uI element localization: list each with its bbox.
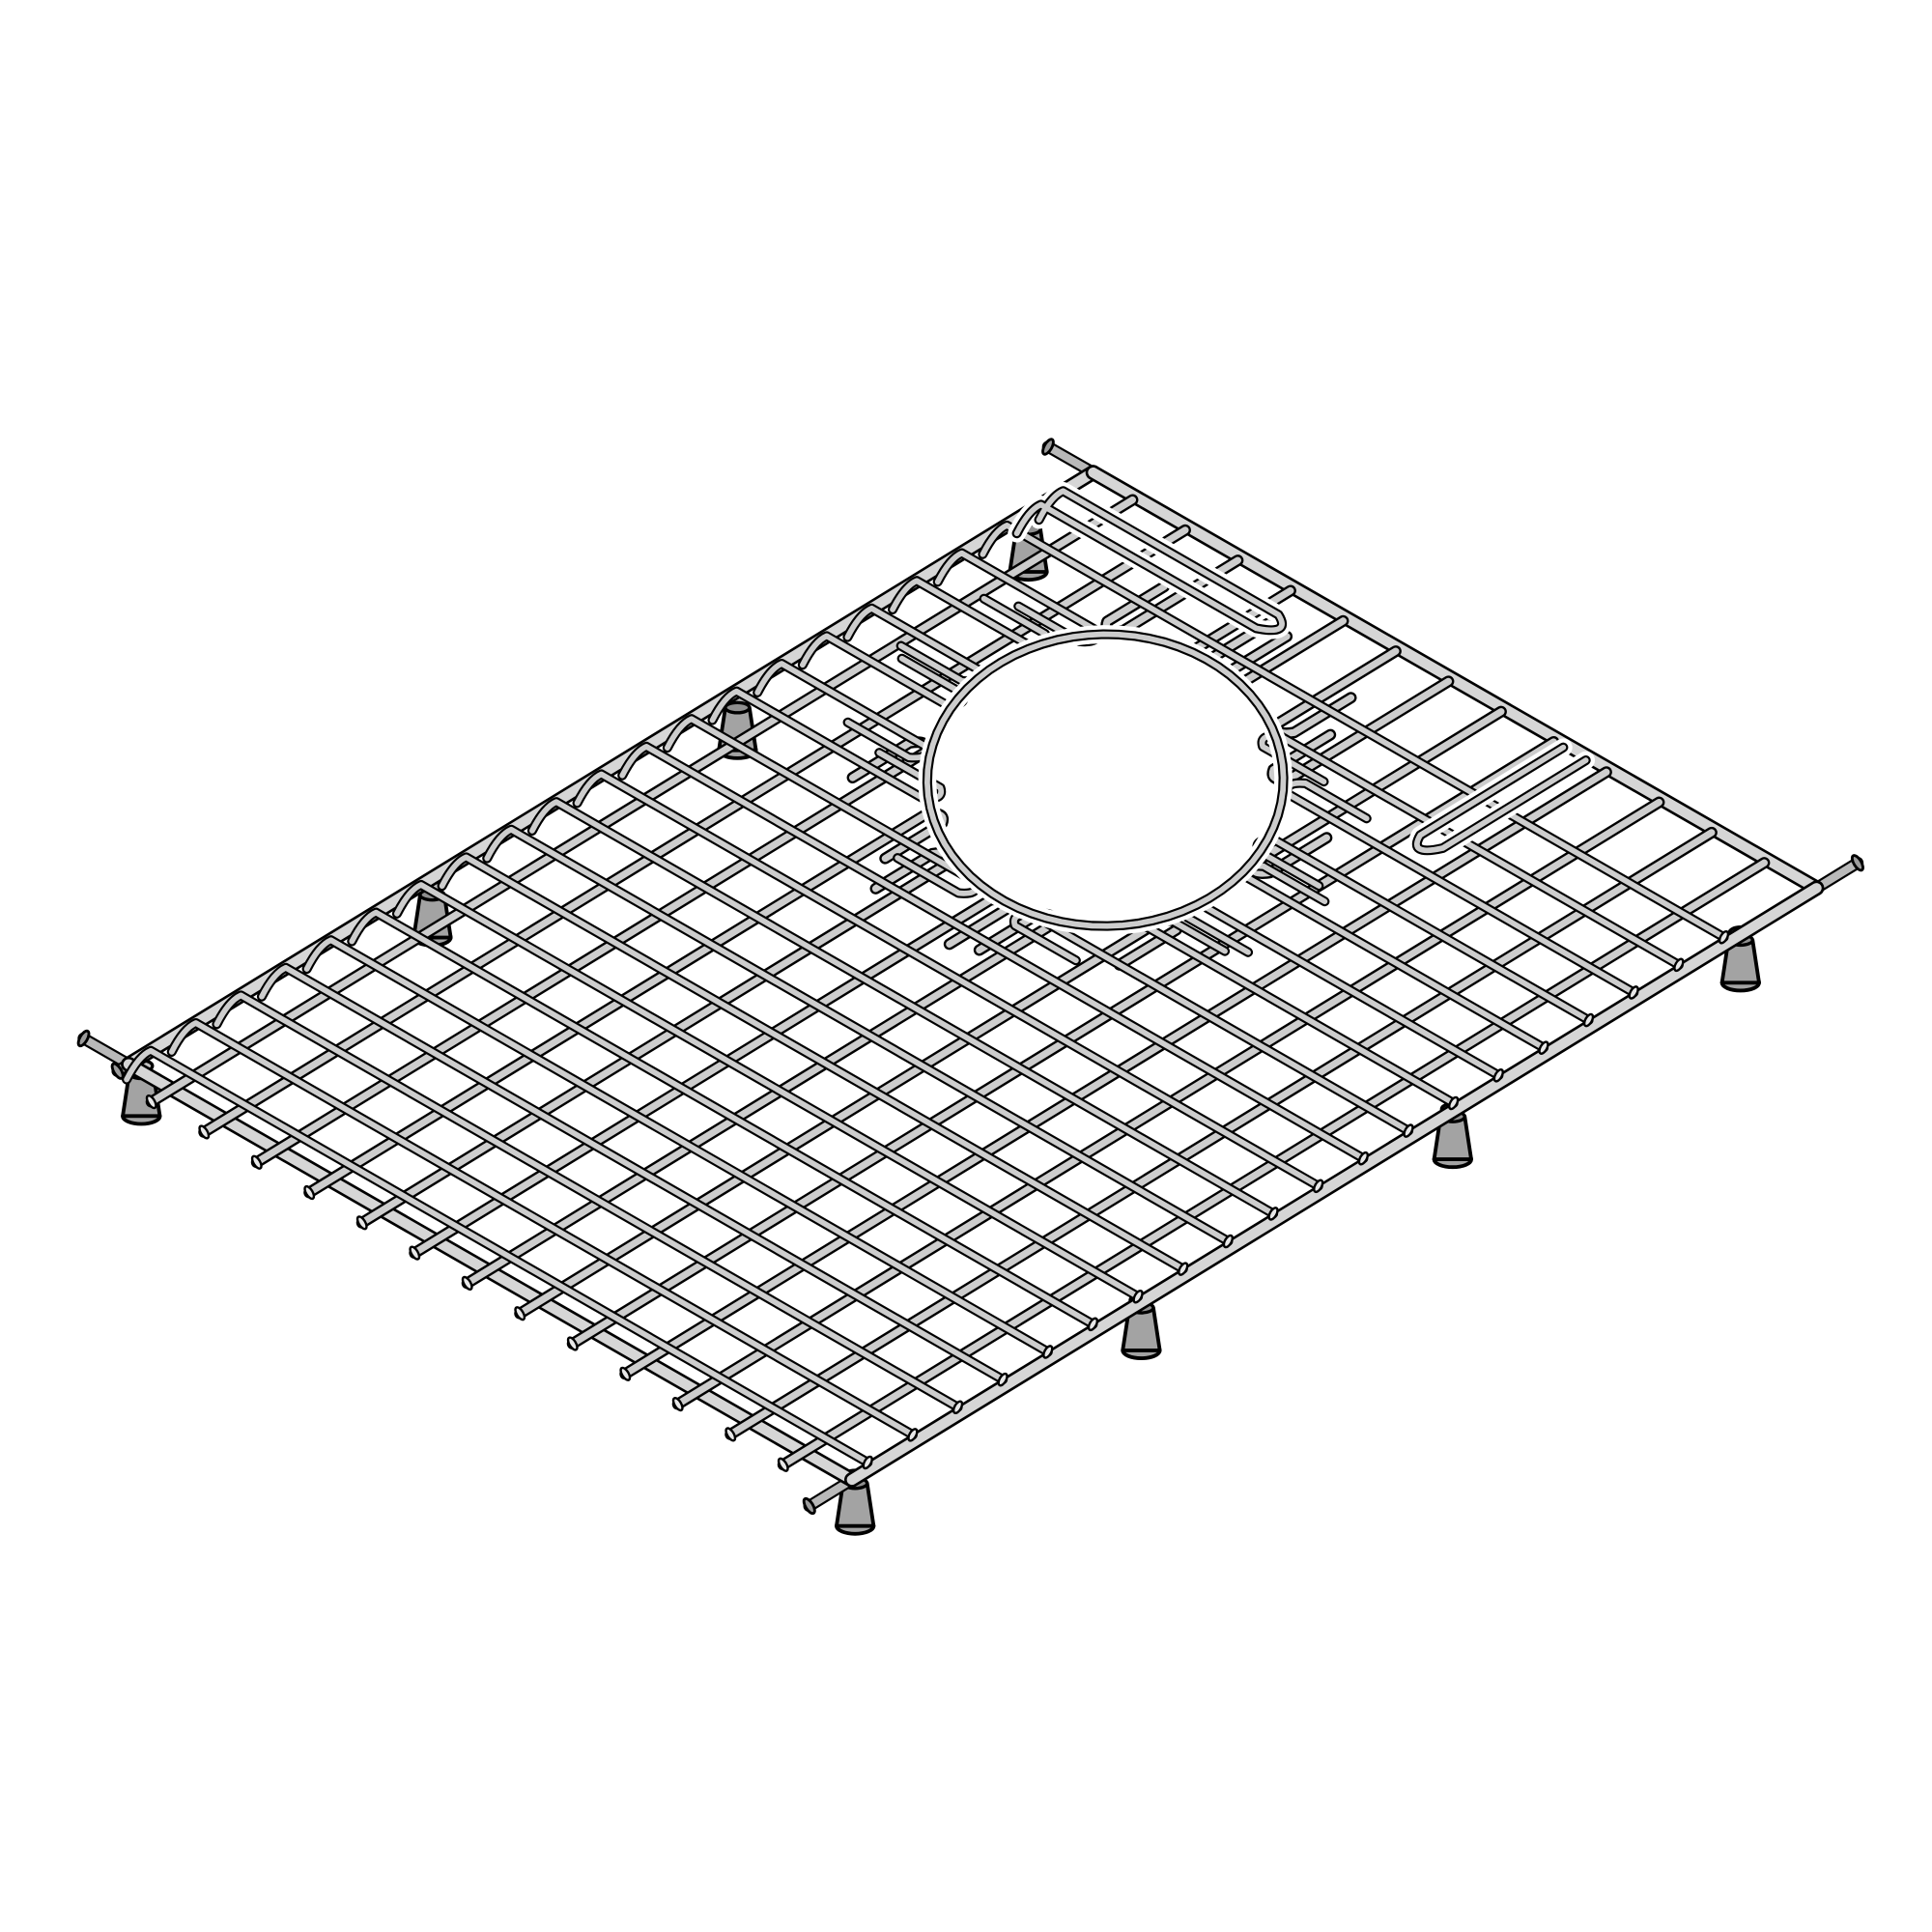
sink-grid-isometric-view [39, 15, 1893, 1917]
sink-grid-technical-drawing [39, 15, 1893, 1917]
background [39, 39, 1893, 1893]
